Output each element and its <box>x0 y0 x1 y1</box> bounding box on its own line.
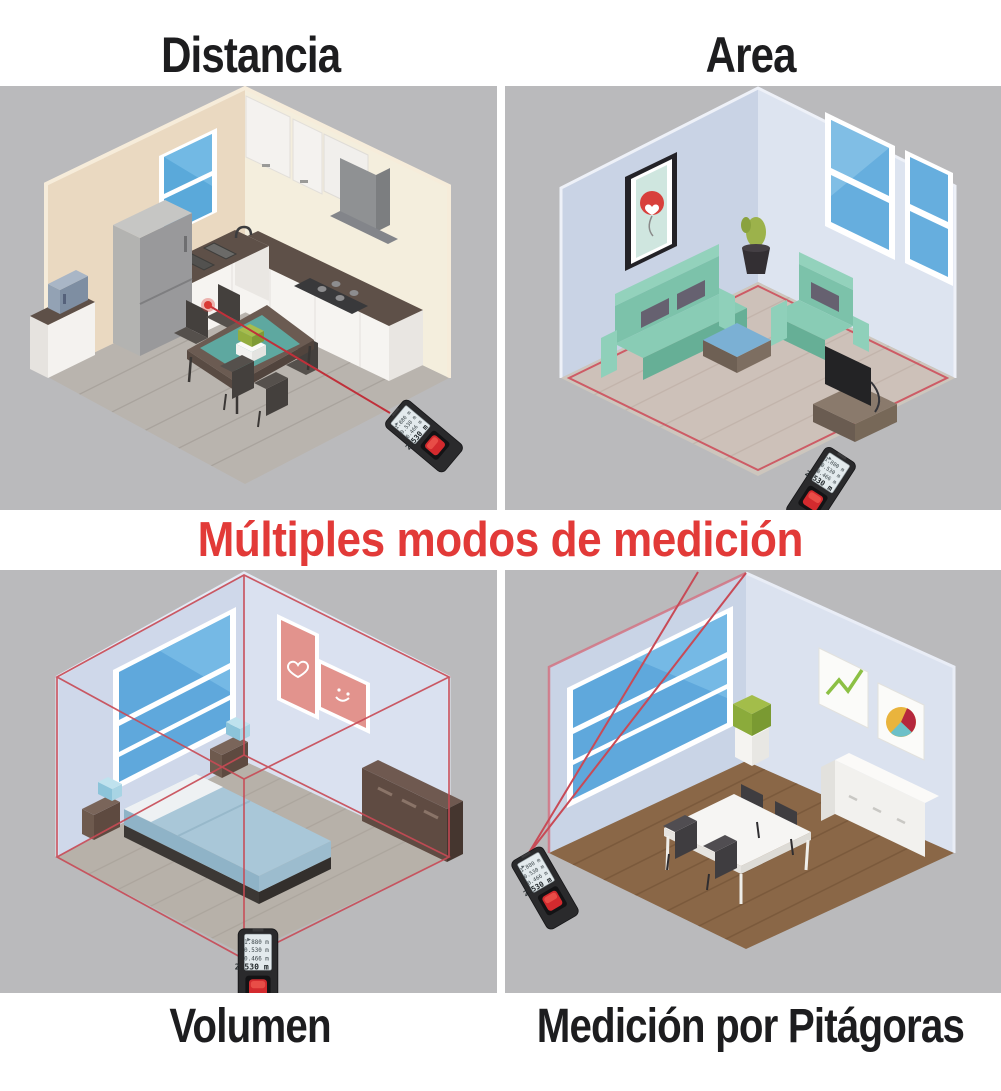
cabinet-handle <box>300 180 308 183</box>
fridge-handle <box>184 236 187 252</box>
living-room-scene-illustration <box>505 86 1001 510</box>
panel-title-pitagoras: Medición por Pitágoras <box>537 999 964 1054</box>
caption-cell-volumen: Volumen <box>0 993 501 1054</box>
burner <box>336 295 345 301</box>
living-room <box>554 88 1001 479</box>
caption-cell-area: Area <box>501 0 1001 86</box>
caption-cell-pitagoras: Medición por Pitágoras <box>501 993 1001 1054</box>
kitchen-scene-illustration <box>0 86 497 510</box>
bedroom-scene-illustration <box>0 570 497 993</box>
sideboard-end <box>821 760 835 821</box>
laser-dot <box>204 301 212 309</box>
center-heading-band: Múltiples modos de medición <box>0 510 1001 570</box>
center-heading: Múltiples modos de medición <box>198 512 803 568</box>
cabinet-side <box>30 316 48 378</box>
laser-device-instance <box>381 398 464 477</box>
panel-pitagoras <box>505 570 1001 993</box>
product-infographic: 1.880 m 0.530 m 0.466 m 2.530 m Distanci… <box>0 0 1001 1091</box>
smiley-eye <box>346 692 349 695</box>
smiley-eye <box>337 688 340 691</box>
panel-area <box>505 86 1001 510</box>
table-leg <box>806 840 808 870</box>
poster-heart <box>281 620 315 714</box>
burner <box>318 286 327 292</box>
cactus-arm <box>741 217 751 233</box>
top-caption-band: Distancia Area <box>0 0 1001 86</box>
armchair-arm <box>771 300 787 346</box>
panel-volumen <box>0 570 497 993</box>
sofa-arm <box>601 330 617 378</box>
burner <box>350 290 359 296</box>
burner <box>332 281 341 287</box>
laser-device-instance <box>235 929 278 993</box>
microwave-handle <box>63 294 66 304</box>
dining-room-scene-illustration <box>505 570 1001 993</box>
hood-side <box>376 168 390 232</box>
cabinet-handle <box>262 164 270 167</box>
bottom-caption-band: Volumen Medición por Pitágoras <box>0 993 1001 1091</box>
panel-title-distancia: Distancia <box>161 26 340 84</box>
panel-title-volumen: Volumen <box>170 999 331 1054</box>
panel-distancia <box>0 86 497 510</box>
fridge-side <box>113 225 140 356</box>
corner-cube-decor <box>733 695 771 766</box>
pot-rim <box>742 244 770 252</box>
panel-title-area: Area <box>706 26 796 84</box>
caption-cell-distancia: Distancia <box>0 0 501 86</box>
